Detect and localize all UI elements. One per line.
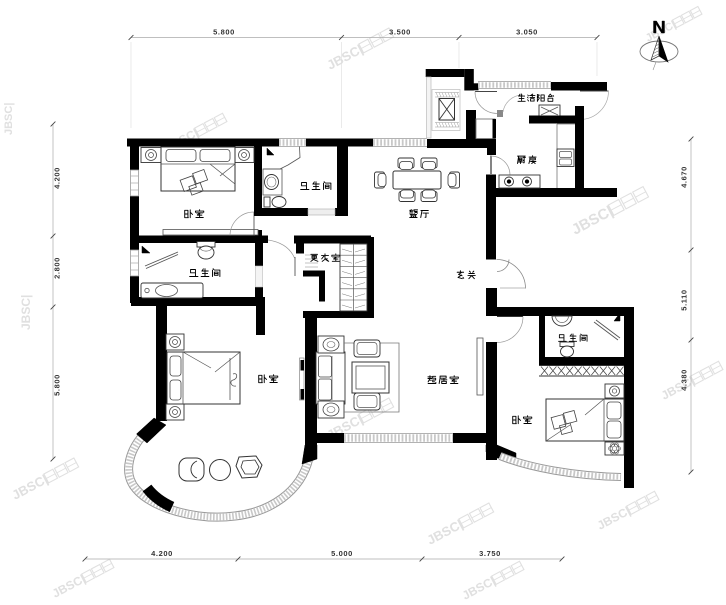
svg-text:4.200: 4.200 [151, 549, 173, 558]
svg-text:5.800: 5.800 [53, 374, 62, 396]
svg-text:4.670: 4.670 [680, 166, 689, 188]
svg-text:5.000: 5.000 [331, 549, 353, 558]
svg-text:JBSC|: JBSC| [19, 295, 33, 330]
svg-text:3.500: 3.500 [389, 28, 411, 37]
svg-text:JBSC|: JBSC| [3, 103, 15, 135]
svg-text:3.750: 3.750 [479, 549, 501, 558]
svg-text:5.110: 5.110 [680, 289, 689, 310]
svg-text:5.800: 5.800 [213, 28, 235, 37]
svg-text:4.380: 4.380 [680, 369, 689, 391]
svg-text:2.800: 2.800 [53, 257, 62, 279]
svg-text:3.050: 3.050 [516, 28, 538, 37]
svg-text:4.200: 4.200 [53, 167, 62, 189]
